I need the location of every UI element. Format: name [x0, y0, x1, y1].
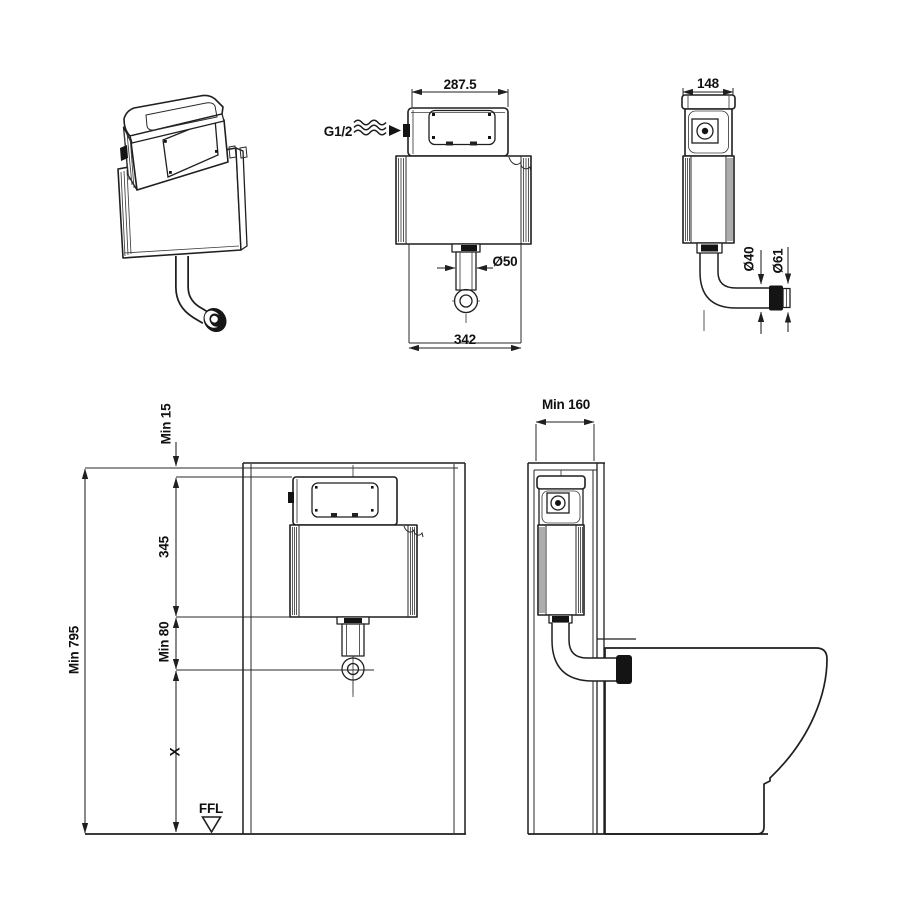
- inlet-boss: [288, 492, 294, 503]
- toilet-pan-profile: [605, 648, 827, 834]
- water-wave-icon: [354, 120, 386, 125]
- dim-pipe-diameter: Ø40: [742, 247, 761, 334]
- dim-cistern-height: 345: [157, 477, 292, 616]
- dim-total-height-label: Min 795: [67, 625, 82, 674]
- pipe-connector: [616, 655, 632, 684]
- dim-outlet-diameter-label: Ø50: [493, 254, 518, 269]
- dim-outlet-diameter: Ø50: [437, 254, 517, 269]
- dim-top-clearance-label: Min 15: [159, 403, 174, 445]
- perspective-view: [118, 95, 247, 336]
- inlet-annotation: G1/2: [324, 120, 410, 139]
- outlet-front: [452, 244, 480, 323]
- flange-3d: [199, 303, 231, 336]
- dim-top-clearance: Min 15: [159, 403, 176, 466]
- flush-unit-front: [408, 108, 508, 156]
- dim-outlet-height-label: Min 80: [157, 622, 172, 663]
- cistern-side: [682, 95, 735, 253]
- dim-pipe-diameter-label: Ø40: [742, 247, 757, 272]
- dim-variable-height: X: [168, 671, 183, 832]
- front-view: 287.5 G1/2: [324, 77, 531, 348]
- install-side-view: Min 160: [528, 397, 827, 834]
- dim-depth-label: 148: [697, 76, 720, 91]
- dim-variable-height-label: X: [168, 747, 183, 756]
- outlet-pipe-3d: [182, 256, 231, 337]
- tank-front: [396, 156, 531, 244]
- inlet-label: G1/2: [324, 124, 352, 139]
- floor-level-label: FFL: [199, 801, 223, 816]
- dim-connector-diameter-label: Ø61: [771, 248, 786, 274]
- ffl-triangle-icon: [203, 817, 221, 832]
- side-view: 148 Ø40: [682, 76, 790, 334]
- install-front-view: Min 15 345 Min 80 X Min 795 FFL: [67, 403, 466, 834]
- inlet-arrow-icon: [389, 125, 401, 136]
- technical-drawing-cistern: 287.5 G1/2: [0, 0, 900, 900]
- dim-bottom-width-label: 342: [454, 332, 476, 347]
- dim-wall-depth: Min 160: [536, 397, 594, 461]
- dim-top-width-label: 287.5: [444, 77, 477, 92]
- floor-level-marker: FFL: [199, 801, 223, 832]
- cistern-install-front: [288, 465, 423, 697]
- dim-cistern-height-label: 345: [157, 535, 172, 558]
- dim-wall-depth-label: Min 160: [542, 397, 590, 412]
- dim-top-width: 287.5: [412, 77, 508, 107]
- dim-total-height: Min 795: [67, 469, 85, 833]
- pipe-connector: [769, 286, 783, 311]
- inlet-boss: [403, 124, 410, 137]
- dim-bottom-width: 342: [409, 332, 521, 348]
